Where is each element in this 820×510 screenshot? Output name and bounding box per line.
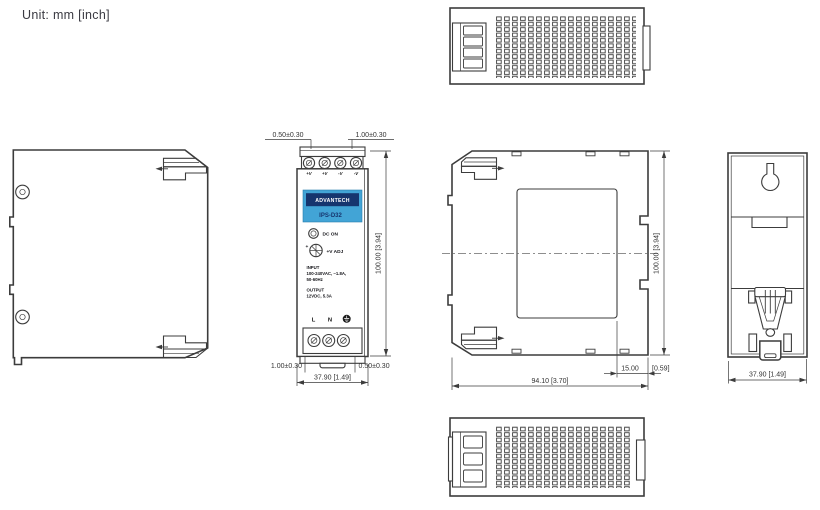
back-view bbox=[728, 153, 807, 360]
top-vent-grid bbox=[496, 16, 636, 78]
dim-front-bottom-right: 0.50±0.30 bbox=[359, 363, 390, 370]
left-side-view bbox=[10, 150, 208, 365]
output-spec-1: 12VDC, 5.3A bbox=[307, 294, 332, 299]
keyhole-mount bbox=[762, 164, 779, 191]
front-top-cap bbox=[300, 147, 365, 157]
dim-side-width: 94.10 [3.70] bbox=[532, 378, 569, 385]
drawing-canvas: +V +V -V -V ADVANTECH IPS-D32 DC ON + bbox=[0, 0, 820, 510]
output-title: OUTPUT bbox=[307, 288, 325, 293]
mount-screw-bottom bbox=[16, 310, 30, 324]
front-bottom-tab bbox=[320, 363, 345, 368]
input-spec-1: 100-240VAC, ~1.8A, bbox=[307, 271, 347, 276]
line-terminal-label: L bbox=[312, 318, 316, 324]
din-rail-clip[interactable] bbox=[749, 288, 792, 361]
dim-side-height: 100.00 [3.94] bbox=[654, 233, 661, 274]
dimension-drawing-page: Unit: mm [inch] bbox=[0, 0, 820, 510]
mount-screw-top bbox=[16, 185, 30, 199]
side-latch-bottom bbox=[462, 327, 505, 349]
ground-terminal-icon bbox=[343, 315, 351, 323]
dim-front-height: 100.00 [3.94] bbox=[376, 233, 383, 274]
dim-front-top-left: 0.50±0.30 bbox=[272, 132, 303, 139]
back-view-dimensions: 37.90 [1.49] bbox=[729, 359, 807, 384]
adj-plus-mark: + bbox=[306, 245, 309, 250]
front-view: +V +V -V -V ADVANTECH IPS-D32 DC ON + bbox=[297, 147, 368, 368]
neutral-terminal-label: N bbox=[328, 318, 332, 324]
dim-side-clip-inch: [0.59] bbox=[652, 366, 670, 373]
top-din-rail-tab bbox=[643, 26, 650, 70]
side-view bbox=[442, 151, 658, 355]
adj-label: +V ADJ bbox=[327, 249, 344, 255]
brand-logo-text: ADVANTECH bbox=[315, 198, 349, 204]
dim-front-bottom-left: 1.00±0.30 bbox=[271, 363, 302, 370]
model-number: IPS-D32 bbox=[319, 213, 342, 219]
led-label: DC ON bbox=[323, 232, 339, 238]
voltage-adjust-pot-icon[interactable] bbox=[310, 244, 322, 256]
bottom-vent-grid bbox=[496, 426, 632, 488]
dim-front-top-right: 1.00±0.30 bbox=[355, 132, 386, 139]
dim-back-width: 37.90 [1.49] bbox=[749, 372, 786, 379]
bottom-view bbox=[449, 418, 646, 496]
front-bottom-screws bbox=[308, 335, 349, 347]
top-view bbox=[450, 8, 650, 84]
side-latch-top bbox=[462, 158, 505, 180]
brand-label-panel: ADVANTECH IPS-D32 bbox=[303, 190, 362, 222]
latch-bottom bbox=[156, 336, 207, 358]
input-title: INPUT bbox=[307, 265, 320, 270]
side-view-dimensions: 100.00 [3.94] 15.00 [0.59] 94.10 [3.70] bbox=[452, 151, 670, 390]
dim-side-clip-mm: 15.00 bbox=[621, 366, 639, 373]
input-spec-2: 50-60Hz bbox=[307, 277, 323, 282]
top-terminal-block bbox=[453, 23, 487, 71]
bottom-din-rail-tab bbox=[637, 440, 646, 480]
dim-front-width: 37.90 [1.49] bbox=[314, 375, 351, 382]
bottom-terminal-block bbox=[449, 432, 487, 487]
